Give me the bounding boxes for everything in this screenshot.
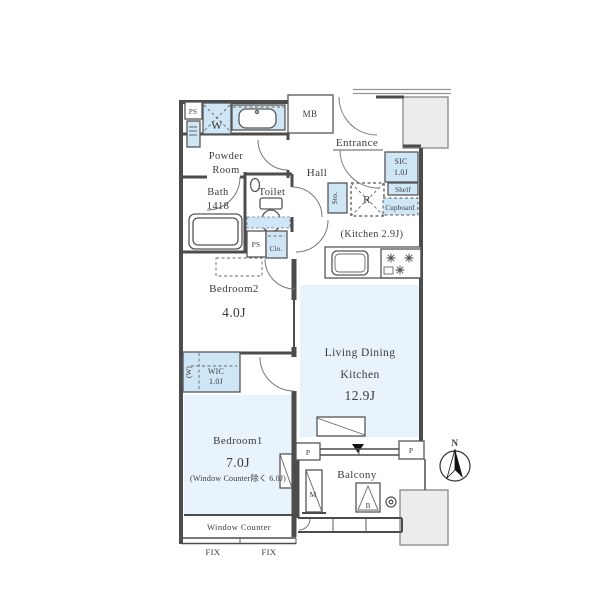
kitchen-door-arc xyxy=(340,150,378,188)
entrance-label: Entrance xyxy=(336,137,378,149)
pillar-left-label: P xyxy=(306,448,310,457)
window-counter-label: Window Counter xyxy=(207,522,271,532)
bedroom2-door-arc xyxy=(265,259,295,289)
faucet-icon xyxy=(386,497,396,507)
railing-top xyxy=(353,90,451,94)
floor-plan: PS W MB Powder Room Entrance SIC 1.0J Sh… xyxy=(0,0,606,601)
powder-room-label-1: Powder xyxy=(209,151,244,162)
ldk-label-1: Living Dining xyxy=(325,347,396,359)
closet-label: Clo. xyxy=(270,245,283,253)
wic-label: WIC xyxy=(208,367,224,376)
compass-icon xyxy=(440,449,470,481)
balcony-label: Balcony xyxy=(337,469,377,481)
mb-label: MB xyxy=(303,109,318,119)
toilet-door-arc xyxy=(292,187,322,217)
laundry-pole-label: M xyxy=(310,490,317,499)
ldk-floor xyxy=(300,285,421,437)
sic-label: SIC xyxy=(394,157,407,166)
entrance-door-arc xyxy=(339,97,377,135)
toilet-cabinet-band xyxy=(247,217,290,228)
ldk-door-arc xyxy=(296,220,328,252)
powder-room-door-arc xyxy=(258,140,288,170)
wic-w-label: (W) xyxy=(185,366,193,378)
ldk-size-label: 12.9J xyxy=(345,388,376,403)
floor-plan-canvas: PS W MB Powder Room Entrance SIC 1.0J Sh… xyxy=(0,0,606,601)
gray-block-top xyxy=(403,97,448,148)
bedroom2-beam-dashed xyxy=(216,258,262,276)
storage-label: Sto. xyxy=(330,192,339,205)
kitchen-size-label: (Kitchen 2.9J) xyxy=(341,229,404,240)
bath-label: Bath xyxy=(207,187,229,198)
hall-label: Hall xyxy=(307,167,328,179)
balcony-railing xyxy=(298,518,402,532)
compass-n-label: N xyxy=(452,438,459,448)
toilet-tank-icon xyxy=(260,198,282,209)
ps-top-label: PS xyxy=(189,108,197,116)
pillar-right-label: P xyxy=(409,446,413,455)
fix-right-label: FIX xyxy=(262,547,277,557)
toilet-label: Toilet xyxy=(259,187,286,198)
cupboard-label: Cupboard xyxy=(385,204,415,212)
refrigerator-label: R xyxy=(363,194,371,206)
washer-label: W xyxy=(211,118,223,132)
balcony-railing-dividers xyxy=(333,518,366,532)
bedroom2-size-label: 4.0J xyxy=(222,305,246,320)
fix-window xyxy=(181,538,296,544)
washbasin-sink-icon xyxy=(239,109,276,128)
water-heater-icon xyxy=(187,121,200,147)
bedroom1-label: Bedroom1 xyxy=(213,435,263,447)
gray-block-bottom xyxy=(400,490,448,545)
bedroom1-size-label: 7.0J xyxy=(226,455,250,470)
bedroom2-label: Bedroom2 xyxy=(209,283,259,295)
balcony-partition-arc xyxy=(299,519,310,530)
bedroom1-note-label: (Window Counter除く 6.0J) xyxy=(190,473,286,483)
balcony-b-label: B xyxy=(366,502,371,510)
faucet-icon-inner xyxy=(389,500,393,504)
bathtub-icon xyxy=(189,214,242,249)
wic-size-label: 1.0J xyxy=(209,377,223,386)
bedroom1-door-arc xyxy=(260,357,294,391)
ldk-label-2: Kitchen xyxy=(340,369,379,381)
sic-size-label: 1.0J xyxy=(394,168,408,177)
shelf-label: Shelf xyxy=(395,186,411,194)
ps-mid-label: PS xyxy=(252,240,261,249)
powder-room-label-2: Room xyxy=(212,165,239,176)
fix-left-label: FIX xyxy=(206,547,221,557)
bath-size-label: 1418 xyxy=(207,201,230,212)
